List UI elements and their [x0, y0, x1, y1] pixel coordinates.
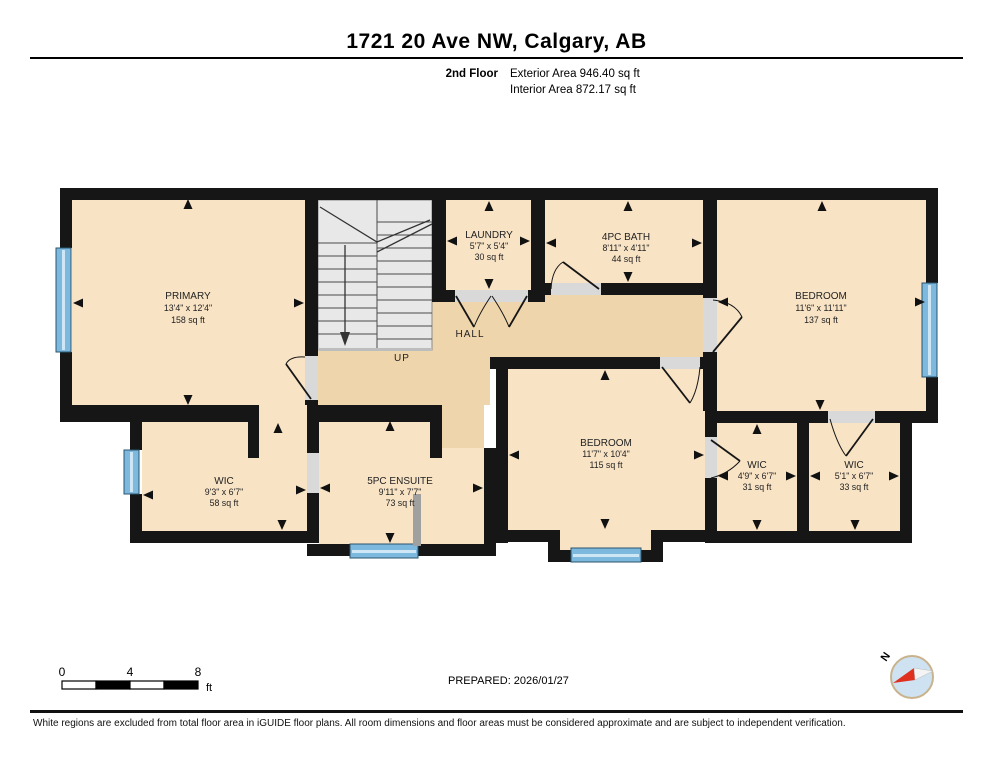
- prepared-date: PREPARED: 2026/01/27: [448, 675, 569, 687]
- scale-unit: ft: [206, 682, 212, 694]
- window-bedroom-mid: [571, 548, 641, 562]
- wall: [248, 422, 259, 458]
- room-area: 73 sq ft: [386, 498, 415, 508]
- wall: [705, 531, 912, 543]
- wall: [700, 357, 717, 369]
- room-name: WIC: [214, 476, 233, 487]
- room-name: 4PC BATH: [602, 232, 650, 243]
- bedroom-tr-threshold: [703, 298, 717, 352]
- wall: [651, 530, 717, 542]
- wall: [601, 283, 703, 295]
- wall: [305, 400, 318, 405]
- wall: [305, 188, 318, 356]
- room-area: 115 sq ft: [589, 460, 623, 470]
- scale-segment: [96, 681, 130, 689]
- bedroom-mid-threshold: [660, 357, 700, 369]
- hall-floor: [432, 357, 490, 405]
- room-dims: 9'3" x 6'7": [205, 487, 243, 497]
- wall: [545, 283, 551, 295]
- wall: [531, 188, 545, 302]
- room-name: WIC: [844, 460, 863, 471]
- footer-disclaimer: White regions are excluded from total fl…: [33, 718, 846, 729]
- wall: [705, 411, 828, 423]
- room-name: WIC: [747, 460, 766, 471]
- wall: [307, 544, 352, 556]
- room-dims: 5'1" x 6'7": [835, 471, 873, 481]
- window-bedroom-tr: [922, 283, 937, 377]
- wic51-threshold: [828, 411, 875, 423]
- wall: [60, 188, 938, 200]
- compass-n-label: N: [879, 650, 893, 663]
- room-area: 31 sq ft: [743, 482, 772, 492]
- room-area: 33 sq ft: [840, 482, 869, 492]
- ensuite-entry-floor: [442, 405, 484, 448]
- room-area: 58 sq ft: [210, 498, 239, 508]
- wall: [430, 420, 442, 458]
- scale-segment: [62, 681, 96, 689]
- stair-edge: [318, 348, 432, 351]
- room-name: PRIMARY: [165, 291, 211, 302]
- staircase: [318, 200, 432, 351]
- scale-tick-8: 8: [195, 665, 202, 679]
- scale-tick-4: 4: [127, 665, 134, 679]
- wall: [416, 544, 496, 556]
- room-name: BEDROOM: [580, 438, 632, 449]
- scale-segment: [130, 681, 164, 689]
- wall: [490, 357, 660, 369]
- room-dims: 11'7" x 10'4": [582, 449, 630, 459]
- wic-nook-floor: [259, 405, 307, 425]
- room-name: LAUNDRY: [465, 230, 513, 241]
- wic-ensuite-opening: [307, 453, 319, 493]
- wall: [307, 422, 319, 453]
- footer-divider: [30, 710, 963, 713]
- laundry-threshold: [455, 290, 528, 302]
- scale-segment: [164, 681, 198, 689]
- wall: [703, 188, 717, 298]
- up-label: UP: [394, 353, 410, 364]
- wall: [797, 423, 809, 531]
- scale-tick-0: 0: [59, 665, 66, 679]
- room-area: 44 sq ft: [612, 254, 641, 264]
- wall: [432, 290, 455, 302]
- wall: [60, 405, 259, 422]
- room-dims: 13'4" x 12'4": [164, 303, 212, 313]
- wall: [130, 531, 319, 543]
- window-wic-left: [124, 450, 139, 494]
- wall: [130, 420, 142, 450]
- room-name: BEDROOM: [795, 291, 847, 302]
- wall: [496, 368, 508, 543]
- room-name: 5PC ENSUITE: [367, 476, 433, 487]
- compass: N: [879, 650, 933, 698]
- room-area: 30 sq ft: [475, 252, 504, 262]
- room-dims: 11'6" x 11'11": [795, 303, 846, 313]
- wall: [60, 200, 72, 248]
- wall: [548, 550, 571, 562]
- wall: [432, 188, 446, 302]
- wall: [926, 200, 938, 283]
- scale-bar: 0 4 8 ft: [59, 665, 212, 694]
- hall-floor: [318, 350, 432, 405]
- window-ensuite: [350, 544, 418, 558]
- hall-label: HALL: [455, 329, 484, 340]
- wall: [900, 423, 912, 543]
- wall: [307, 405, 442, 422]
- wall: [875, 411, 938, 423]
- room-dims: 8'11" x 4'11": [603, 243, 650, 253]
- wall: [60, 352, 72, 408]
- room-area: 137 sq ft: [804, 315, 838, 325]
- hall-floor: [545, 295, 703, 357]
- wall: [705, 478, 717, 531]
- room-dims: 5'7" x 5'4": [470, 241, 508, 251]
- wall: [484, 448, 496, 556]
- floor-plan: PRIMARY 13'4" x 12'4" 158 sq ft LAUNDRY …: [0, 0, 993, 768]
- wall: [528, 290, 545, 302]
- wall: [307, 493, 319, 543]
- hall-floor: [432, 302, 545, 357]
- room-dims: 4'9" x 6'7": [738, 471, 776, 481]
- room-dims: 9'11" x 7'7": [379, 487, 422, 497]
- window-primary: [56, 248, 71, 352]
- room-area: 158 sq ft: [171, 315, 205, 325]
